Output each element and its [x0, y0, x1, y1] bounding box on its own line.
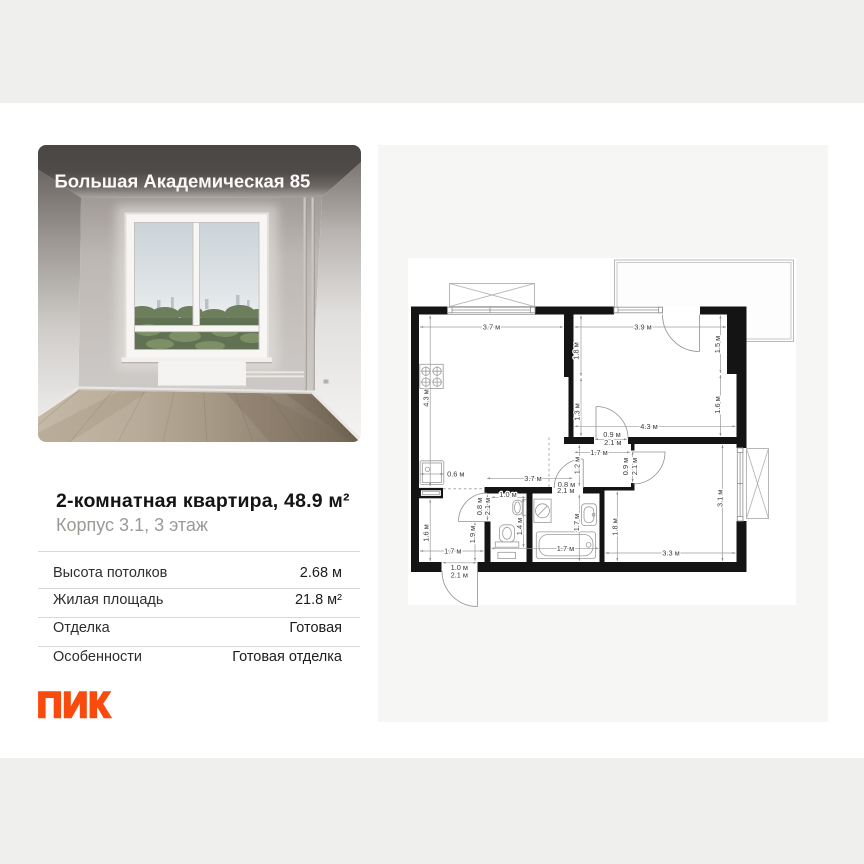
svg-text:1.8 м: 1.8 м: [572, 342, 581, 359]
svg-text:1.7 м: 1.7 м: [572, 514, 581, 531]
svg-text:3.1 м: 3.1 м: [716, 490, 725, 507]
svg-text:3.7 м: 3.7 м: [483, 323, 500, 332]
svg-text:1.3 м: 1.3 м: [573, 403, 582, 420]
svg-text:1.5 м: 1.5 м: [713, 336, 722, 353]
svg-text:2.1 м: 2.1 м: [557, 486, 574, 495]
svg-text:1.8 м: 1.8 м: [610, 518, 619, 535]
svg-text:Большая Академическая 85: Большая Академическая 85: [55, 171, 311, 192]
svg-text:3.9 м: 3.9 м: [634, 323, 651, 332]
svg-text:1.2 м: 1.2 м: [573, 457, 582, 474]
svg-text:1.7 м: 1.7 м: [444, 546, 461, 555]
svg-text:4.3 м: 4.3 м: [422, 389, 431, 406]
svg-text:2.1 м: 2.1 м: [451, 570, 468, 579]
svg-text:1.0 м: 1.0 м: [499, 490, 516, 499]
svg-text:2.1 м: 2.1 м: [630, 458, 639, 475]
svg-text:4.3 м: 4.3 м: [640, 422, 657, 431]
svg-text:3.7 м: 3.7 м: [524, 474, 541, 483]
svg-text:1.6 м: 1.6 м: [422, 524, 431, 541]
svg-text:3.3 м: 3.3 м: [662, 549, 679, 558]
svg-text:2.1 м: 2.1 м: [483, 498, 492, 515]
svg-text:1.7 м: 1.7 м: [590, 448, 607, 457]
svg-text:1.4 м: 1.4 м: [515, 518, 524, 535]
svg-text:1.9 м: 1.9 м: [468, 526, 477, 543]
svg-text:0.6 м: 0.6 м: [447, 469, 464, 478]
svg-text:2.1 м: 2.1 м: [604, 438, 621, 447]
svg-text:1.6 м: 1.6 м: [713, 396, 722, 413]
svg-text:1.7 м: 1.7 м: [557, 544, 574, 553]
